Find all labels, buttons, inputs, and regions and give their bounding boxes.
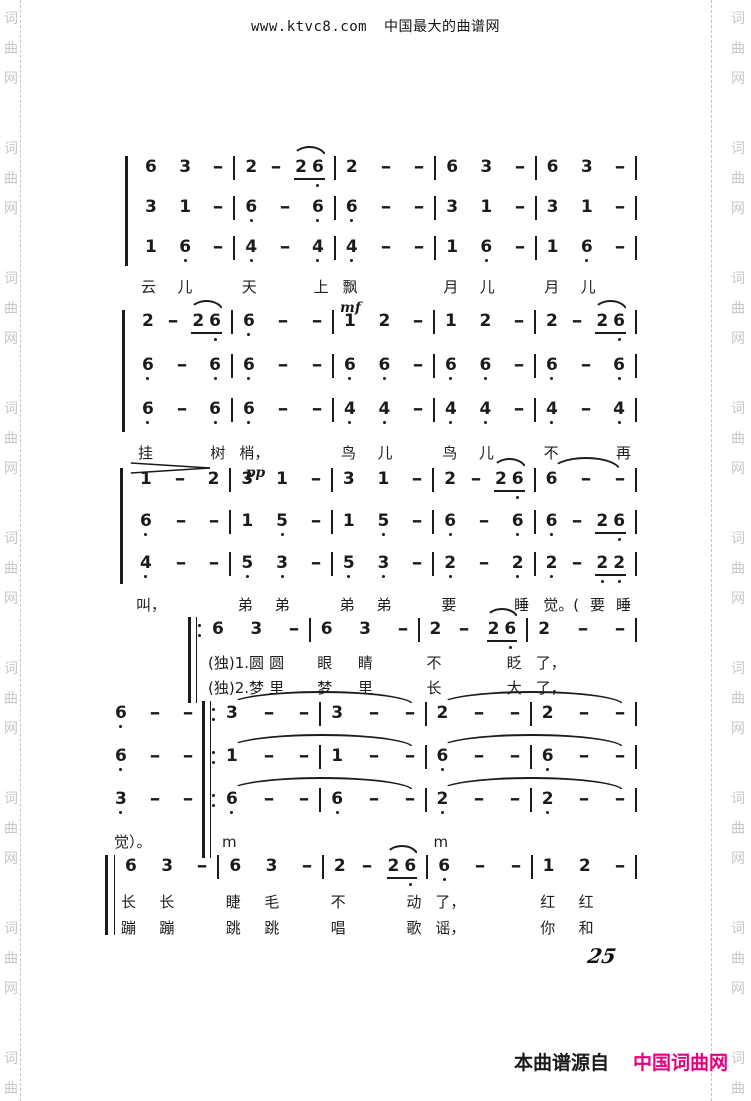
note-group: 3 bbox=[240, 468, 254, 490]
note-group: 6 bbox=[612, 354, 626, 376]
dash-continuation: - bbox=[409, 468, 425, 490]
pickup-cell: 6-- bbox=[112, 745, 202, 767]
note-number: 2 bbox=[444, 552, 456, 574]
note-group: - bbox=[263, 702, 275, 724]
note-group: 2 bbox=[545, 552, 559, 574]
system-6: 63-63-2-266--12-长长 睫毛 不 动了， 红红 蹦蹦 跳跳 唱 歌… bbox=[105, 855, 637, 943]
note-number: 6 bbox=[446, 156, 458, 178]
note-group: 6 bbox=[580, 236, 594, 258]
note-number: 6 bbox=[209, 354, 221, 376]
measures-container: 6-66--44-44-4-4 bbox=[132, 398, 637, 422]
lyric-syllable bbox=[313, 442, 327, 464]
lyric-syllable bbox=[399, 652, 413, 674]
lyric-syllable: 叫， bbox=[136, 594, 166, 616]
dash-continuation: - bbox=[261, 788, 277, 810]
note-number: 3 bbox=[145, 196, 157, 218]
measure: 16- bbox=[135, 236, 233, 258]
note-number: 5 bbox=[378, 510, 390, 532]
repeat-sign bbox=[202, 788, 216, 831]
lyric-syllable bbox=[303, 891, 317, 913]
voice-row-3: 4--53-53-2-22-22 bbox=[120, 552, 637, 594]
dash-continuation: - bbox=[210, 236, 226, 258]
dash-continuation: - bbox=[507, 788, 523, 810]
measure: 4-4 bbox=[235, 236, 333, 258]
note-group: - bbox=[196, 855, 208, 877]
note-group: 6 bbox=[311, 196, 325, 218]
measure: 2-2 bbox=[434, 552, 533, 574]
dash-continuation: - bbox=[173, 510, 189, 532]
measure: 63- bbox=[436, 156, 534, 178]
dash-continuation: - bbox=[147, 745, 163, 767]
lyric-syllable: 跳 bbox=[264, 917, 279, 939]
dash-continuation: - bbox=[174, 398, 190, 420]
lyric-syllable: 蹦 bbox=[121, 917, 136, 939]
repeat-sign bbox=[202, 702, 216, 745]
dash-continuation: - bbox=[402, 702, 418, 724]
note-group: 1 bbox=[240, 510, 254, 532]
dash-continuation: - bbox=[409, 552, 425, 574]
note-group: - bbox=[514, 236, 526, 258]
note-number: 3 bbox=[331, 702, 343, 724]
note-group: 3 bbox=[225, 702, 239, 724]
note-group: - bbox=[509, 788, 521, 810]
note-number: 2 bbox=[334, 855, 346, 877]
note-group: - bbox=[474, 855, 486, 877]
lyric-syllable: 鸟 bbox=[442, 442, 457, 464]
voice-row-1: 1-231-31-2-266-- bbox=[120, 468, 637, 510]
note-group: 6 bbox=[545, 510, 559, 532]
note-group: - bbox=[182, 788, 194, 810]
lyric-syllable bbox=[278, 276, 292, 298]
note-group: 6 bbox=[320, 618, 334, 640]
note-group: 2 bbox=[479, 310, 493, 332]
note-number: 6 bbox=[212, 618, 224, 640]
dash-continuation: - bbox=[612, 855, 628, 877]
lyric-syllable: 儿 bbox=[581, 276, 596, 298]
measures-container: 蹦蹦 跳跳 唱 歌谣， 你和 bbox=[115, 917, 637, 939]
lyric-syllable: 睡 bbox=[616, 594, 631, 616]
lyric-syllable: 了， bbox=[435, 891, 465, 913]
measure: 63- bbox=[115, 855, 217, 877]
measure: 53- bbox=[231, 552, 330, 574]
measures-container: 16-4-44--16-16- bbox=[135, 236, 637, 260]
note-group: 2 bbox=[436, 702, 450, 724]
note-group: - bbox=[413, 236, 425, 258]
note-group: 1 bbox=[546, 236, 560, 258]
lyric-syllable bbox=[369, 891, 383, 913]
note-group: - bbox=[404, 745, 416, 767]
lyric-syllable: 了， bbox=[536, 652, 566, 674]
note-number: 6 bbox=[546, 354, 558, 376]
measure: 飘 bbox=[337, 276, 436, 298]
note-number: 3 bbox=[266, 855, 278, 877]
barline bbox=[635, 788, 637, 812]
note-group: 6 bbox=[545, 354, 559, 376]
lyric-syllable bbox=[512, 917, 526, 939]
note-group: 3 bbox=[330, 702, 344, 724]
dash-continuation: - bbox=[402, 788, 418, 810]
measure: 唱 歌 bbox=[325, 917, 428, 939]
dash-continuation: - bbox=[366, 702, 382, 724]
note-number: 6 bbox=[546, 510, 558, 532]
dash-continuation: - bbox=[411, 236, 427, 258]
note-group: - bbox=[580, 354, 592, 376]
note-group: - bbox=[310, 510, 322, 532]
measure: 6-- bbox=[233, 354, 332, 376]
lyrics-row-2: (独)1.圆圆 眼睛 不 眨了， bbox=[188, 652, 637, 677]
note-group: - bbox=[413, 156, 425, 178]
lyric-syllable: 树 bbox=[210, 442, 225, 464]
note-number: 6 bbox=[504, 618, 516, 640]
note-group: - bbox=[513, 310, 525, 332]
dash-continuation: - bbox=[569, 310, 585, 332]
measure: 叫， bbox=[130, 594, 230, 616]
note-group: 4 bbox=[479, 398, 493, 420]
note-number: 6 bbox=[613, 354, 625, 376]
dash-continuation: - bbox=[180, 788, 196, 810]
dash-continuation: - bbox=[308, 468, 324, 490]
lyrics-row-3: 蹦蹦 跳跳 唱 歌谣， 你和 bbox=[105, 917, 637, 943]
note-number: 6 bbox=[404, 855, 416, 877]
note-group: 6 bbox=[444, 354, 458, 376]
note-number: 2 bbox=[444, 468, 456, 490]
measure: 3-- bbox=[216, 702, 319, 724]
note-group: - bbox=[614, 788, 626, 810]
note-number: 2 bbox=[512, 552, 524, 574]
lyric-syllable: 长 bbox=[159, 891, 174, 913]
note-group: - bbox=[614, 618, 626, 640]
note-number: 6 bbox=[209, 398, 221, 420]
voice-row-1: 63-63-2-262-- bbox=[188, 618, 637, 652]
measures-container: 叫， 弟弟 弟弟 要 睡觉。(要睡 bbox=[130, 594, 637, 616]
voice-row-1: 63-2-262--63-63- bbox=[125, 156, 637, 196]
measure: 16- bbox=[436, 236, 534, 258]
dash-continuation: - bbox=[210, 156, 226, 178]
lyric-syllable: 上 bbox=[314, 276, 329, 298]
measure: 你和 bbox=[534, 917, 637, 939]
note-group: 2 bbox=[345, 156, 359, 178]
note-group: 1 bbox=[343, 310, 357, 332]
note-number: 5 bbox=[343, 552, 355, 574]
note-group: - bbox=[614, 196, 626, 218]
note-group: - bbox=[614, 702, 626, 724]
note-group: 2 bbox=[207, 468, 221, 490]
page-number: 25 bbox=[586, 944, 618, 968]
dash-continuation: - bbox=[309, 398, 325, 420]
voice-row-2: 31-6-66--31-31- bbox=[125, 196, 637, 236]
note-group: - bbox=[413, 196, 425, 218]
measure: 31- bbox=[231, 468, 330, 490]
measure: 4-- bbox=[130, 552, 229, 574]
note-group: 2 bbox=[244, 156, 258, 178]
note-group: 6 bbox=[545, 468, 559, 490]
note-group: 6 bbox=[124, 855, 138, 877]
repeat-sign bbox=[188, 618, 202, 652]
dash-continuation: - bbox=[275, 310, 291, 332]
lyric-syllable bbox=[617, 891, 631, 913]
lyric-syllable bbox=[482, 917, 496, 939]
measure: 1-- bbox=[216, 745, 319, 767]
dash-continuation: - bbox=[194, 855, 210, 877]
note-group: - bbox=[277, 354, 289, 376]
measure: 6-- bbox=[536, 468, 635, 490]
repeat-sign bbox=[188, 652, 202, 677]
note-group: - bbox=[478, 510, 490, 532]
lyric-syllable: 毛 bbox=[264, 891, 279, 913]
dash-continuation: - bbox=[456, 618, 472, 640]
note-group: 5 bbox=[240, 552, 254, 574]
note-group: - bbox=[277, 398, 289, 420]
note-group: - bbox=[208, 552, 220, 574]
measure: 12- bbox=[533, 855, 635, 877]
note-group: 2 bbox=[511, 552, 525, 574]
lyric-syllable: 要 bbox=[441, 594, 456, 616]
measure: 6-- bbox=[427, 745, 530, 767]
dash-continuation: - bbox=[476, 552, 492, 574]
lyric-syllable bbox=[617, 652, 631, 674]
note-number: 4 bbox=[613, 398, 625, 420]
measure: 63- bbox=[135, 156, 233, 178]
lyric-syllable bbox=[467, 652, 481, 674]
note-group: - bbox=[458, 618, 470, 640]
note-group: 6 bbox=[141, 398, 155, 420]
note-group: 4 bbox=[311, 236, 325, 258]
lyrics-row-4: 叫， 弟弟 弟弟 要 睡觉。(要睡 bbox=[120, 594, 637, 620]
lyric-syllable: 红 bbox=[540, 891, 555, 913]
note-group: - bbox=[470, 468, 482, 490]
note-group: 3 bbox=[275, 552, 289, 574]
dash-continuation: - bbox=[206, 552, 222, 574]
note-group: 1 bbox=[445, 236, 459, 258]
note-number: 6 bbox=[437, 745, 449, 767]
slurred-note-group: 26 bbox=[294, 156, 325, 180]
lyric-syllable: 谣， bbox=[435, 917, 465, 939]
note-number: 6 bbox=[142, 398, 154, 420]
voice-row-1: 2-266--12-12-2-26 bbox=[122, 310, 637, 354]
lyric-syllable bbox=[198, 891, 212, 913]
note-group: 6 bbox=[330, 788, 344, 810]
lyric-syllable: 不 bbox=[544, 442, 559, 464]
note-group: - bbox=[380, 236, 392, 258]
beamed-note-group: 22 bbox=[595, 552, 626, 576]
measure: 53- bbox=[333, 552, 432, 574]
note-group: 5 bbox=[275, 510, 289, 532]
measure: 2-- bbox=[532, 702, 635, 724]
note-number: 1 bbox=[343, 510, 355, 532]
note-group: 3 bbox=[144, 196, 158, 218]
note-number: 2 bbox=[542, 702, 554, 724]
note-group: 2 bbox=[141, 310, 155, 332]
voice-row-1: 63-63-2-266--12- bbox=[105, 855, 637, 891]
measure: 2-26 bbox=[434, 468, 533, 492]
note-group: 1 bbox=[377, 468, 391, 490]
note-group: 1 bbox=[139, 468, 153, 490]
lyric-syllable: 和 bbox=[579, 917, 594, 939]
note-number: 6 bbox=[243, 310, 255, 332]
lyric-syllable bbox=[617, 831, 631, 853]
note-number: 6 bbox=[226, 788, 238, 810]
lyric-syllable: 梢， bbox=[239, 442, 269, 464]
note-number: 1 bbox=[344, 310, 356, 332]
note-group: 3 bbox=[342, 468, 356, 490]
note-group: - bbox=[212, 156, 224, 178]
dash-continuation: - bbox=[268, 156, 284, 178]
note-number: 2 bbox=[142, 310, 154, 332]
measure: 蹦蹦 bbox=[115, 917, 218, 939]
note-group: - bbox=[279, 196, 291, 218]
measure: 4-- bbox=[336, 236, 434, 258]
slurred-note-group: 26 bbox=[487, 618, 518, 642]
note-number: 2 bbox=[379, 310, 391, 332]
note-group: 4 bbox=[343, 398, 357, 420]
dash-continuation: - bbox=[308, 510, 324, 532]
dash-continuation: - bbox=[508, 855, 524, 877]
measure: 云儿 bbox=[135, 276, 234, 298]
note-number: 2 bbox=[208, 468, 220, 490]
note-group: 1 bbox=[342, 510, 356, 532]
lyric-syllable: 月 bbox=[544, 276, 559, 298]
note-number: 6 bbox=[546, 468, 558, 490]
note-group: 6 bbox=[479, 236, 493, 258]
note-group: - bbox=[577, 618, 589, 640]
lyric-syllable: 歌 bbox=[406, 917, 421, 939]
note-number: 2 bbox=[388, 855, 400, 877]
measures-container: 1--1--6--6-- bbox=[216, 745, 637, 769]
measures-container: 31-6-66--31-31- bbox=[135, 196, 637, 220]
measure: 月儿 bbox=[538, 276, 637, 298]
note-number: 6 bbox=[312, 156, 324, 178]
dash-continuation: - bbox=[410, 310, 426, 332]
note-group: 3 bbox=[377, 552, 391, 574]
system-bracket bbox=[125, 156, 128, 266]
note-group: 6 bbox=[511, 510, 525, 532]
lyric-syllable: 眼 bbox=[317, 652, 332, 674]
dash-continuation: - bbox=[612, 468, 628, 490]
lyric-syllable: 不 bbox=[427, 652, 442, 674]
note-number: 6 bbox=[542, 745, 554, 767]
note-group: 6 bbox=[211, 618, 225, 640]
note-group: - bbox=[411, 468, 423, 490]
note-number: 2 bbox=[613, 552, 625, 574]
dash-continuation: - bbox=[147, 788, 163, 810]
note-group: - bbox=[175, 510, 187, 532]
note-number: 1 bbox=[581, 196, 593, 218]
lyric-syllable: 蹦 bbox=[159, 917, 174, 939]
measure: 弟弟 bbox=[334, 594, 434, 616]
note-number: 3 bbox=[276, 552, 288, 574]
lyric-syllable bbox=[312, 594, 326, 616]
lyric-syllable: 睛 bbox=[358, 652, 373, 674]
dash-continuation: - bbox=[578, 354, 594, 376]
note-group: 2 bbox=[333, 855, 347, 877]
lyric-syllable: 长 bbox=[427, 677, 442, 699]
measure: 66- bbox=[334, 354, 433, 376]
note-group: - bbox=[571, 552, 583, 574]
note-group: - bbox=[288, 618, 300, 640]
note-group: 2 bbox=[541, 788, 555, 810]
pickup-cell: 觉）。 bbox=[112, 831, 202, 853]
dash-continuation: - bbox=[147, 702, 163, 724]
lyrics-row-2: 长长 睫毛 不 动了， 红红 bbox=[105, 891, 637, 917]
dash-continuation: - bbox=[576, 745, 592, 767]
measure: 1-2 bbox=[130, 468, 229, 490]
lyric-syllable: 唱 bbox=[331, 917, 346, 939]
measure: 1-- bbox=[321, 745, 424, 767]
measure: 弟弟 bbox=[232, 594, 332, 616]
measures-container: 63-63-2-266--12- bbox=[115, 855, 637, 879]
lyric-syllable: 儿 bbox=[378, 442, 393, 464]
note-number: 6 bbox=[445, 354, 457, 376]
note-group: - bbox=[509, 702, 521, 724]
measures-container: 2-266--12-12-2-26 bbox=[132, 310, 637, 334]
voice-row-3: 6-66--44-44-4-4 bbox=[122, 398, 637, 442]
measure: 要 睡 bbox=[435, 594, 535, 616]
note-group: - bbox=[208, 510, 220, 532]
measure: 睫毛 bbox=[220, 891, 323, 913]
lyric-syllable bbox=[415, 276, 429, 298]
note-group: 6 bbox=[225, 788, 239, 810]
measure: 63- bbox=[219, 855, 321, 877]
measure: 跳跳 bbox=[220, 917, 323, 939]
lyric-syllable: 弟 bbox=[238, 594, 253, 616]
note-group: - bbox=[473, 788, 485, 810]
note-number: 3 bbox=[480, 156, 492, 178]
note-number: 2 bbox=[579, 855, 591, 877]
note-number: 6 bbox=[480, 354, 492, 376]
measure: 12- bbox=[435, 310, 534, 332]
note-number: 2 bbox=[346, 156, 358, 178]
dash-continuation: - bbox=[378, 156, 394, 178]
measure: 梢， bbox=[233, 442, 332, 464]
note-group: 5 bbox=[377, 510, 391, 532]
note-number: 1 bbox=[226, 745, 238, 767]
note-number: 2 bbox=[437, 788, 449, 810]
note-number: 4 bbox=[140, 552, 152, 574]
lyric-syllable bbox=[511, 831, 525, 853]
dash-continuation: - bbox=[275, 398, 291, 420]
measures-container: m m bbox=[216, 831, 637, 853]
lyric-syllable bbox=[284, 442, 298, 464]
note-group: - bbox=[149, 745, 161, 767]
dash-continuation: - bbox=[575, 618, 591, 640]
note-number: 2 bbox=[538, 618, 550, 640]
lyric-syllable: 儿 bbox=[480, 276, 495, 298]
measure: 2-26 bbox=[132, 310, 231, 334]
sheet-music-page: 词曲网词曲网词曲网词曲网词曲网词曲网词曲网词曲网词曲网 词曲网词曲网词曲网词曲网… bbox=[0, 0, 751, 1101]
note-number: 1 bbox=[145, 236, 157, 258]
dash-continuation: - bbox=[180, 745, 196, 767]
lyric-syllable: 眨 bbox=[507, 652, 522, 674]
dash-continuation: - bbox=[378, 236, 394, 258]
note-number: 2 bbox=[437, 702, 449, 724]
note-group: - bbox=[571, 510, 583, 532]
note-number: 4 bbox=[480, 398, 492, 420]
dash-continuation: - bbox=[578, 398, 594, 420]
measure: 6-6 bbox=[235, 196, 333, 218]
dash-continuation: - bbox=[366, 745, 382, 767]
lyric-syllable bbox=[473, 831, 487, 853]
note-number: 2 bbox=[596, 510, 608, 532]
note-group: 6 bbox=[443, 510, 457, 532]
note-number: 1 bbox=[543, 855, 555, 877]
note-group: - bbox=[411, 552, 423, 574]
note-group: - bbox=[368, 702, 380, 724]
measure: 16- bbox=[537, 236, 635, 258]
note-group: - bbox=[176, 354, 188, 376]
note-group: 4 bbox=[545, 398, 559, 420]
note-number: 6 bbox=[115, 745, 127, 767]
note-group: - bbox=[578, 788, 590, 810]
